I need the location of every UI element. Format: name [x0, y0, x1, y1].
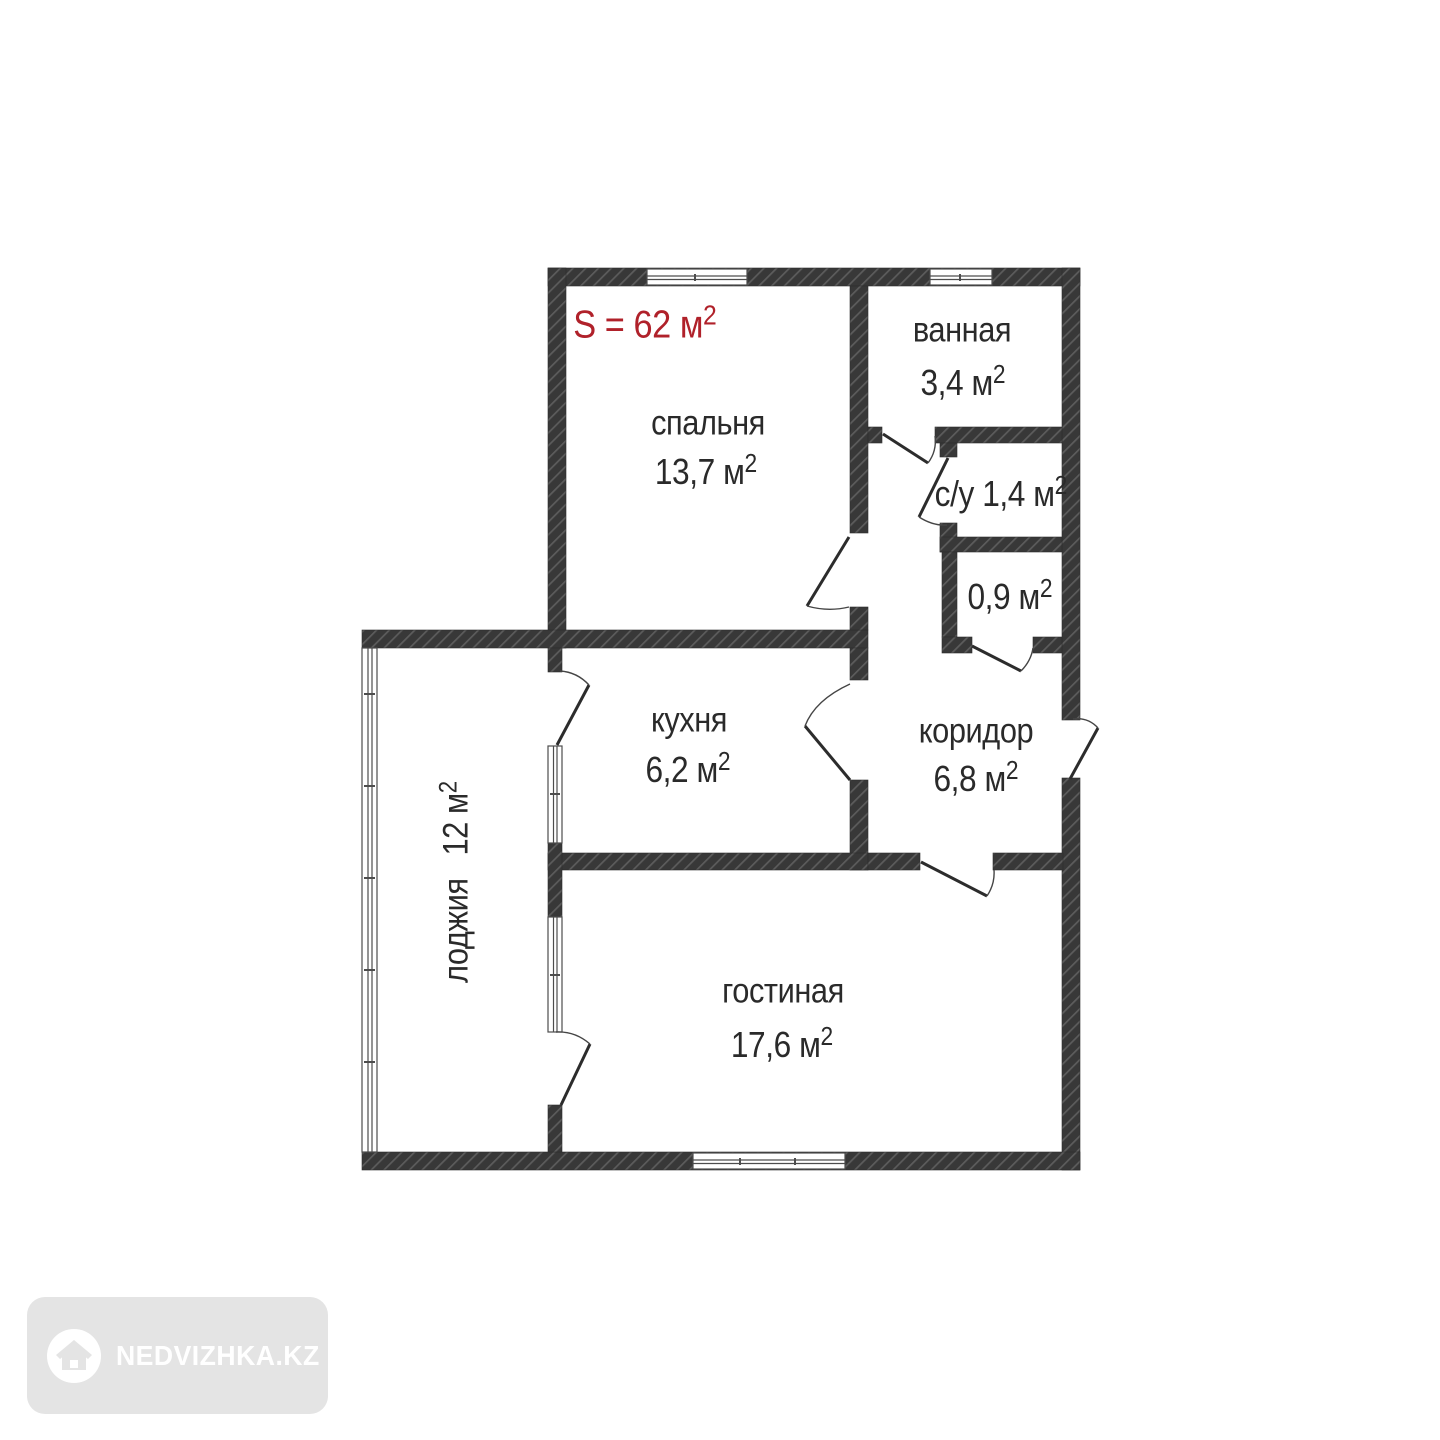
label-bedroom-name: спальня	[651, 406, 765, 441]
window-bathroom	[930, 269, 992, 285]
label-corridor-area: 6,8 м2	[933, 759, 1018, 797]
total-area-label: S = 62 м2	[573, 302, 717, 345]
door-storage	[972, 646, 1033, 671]
label-bathroom-name: ванная	[913, 313, 1011, 348]
door-kitchen-balcony	[557, 671, 589, 745]
window-kitchen-loggia	[548, 746, 562, 843]
label-storage-area: 0,9 м2	[967, 577, 1052, 615]
window-living	[693, 1153, 845, 1169]
watermark-badge: NEDVIZHKA.KZ	[27, 1297, 328, 1414]
label-living-name: гостиная	[722, 974, 844, 1009]
door-bedroom	[807, 537, 849, 609]
label-bathroom-area: 3,4 м2	[920, 363, 1005, 401]
label-bedroom-area: 13,7 м2	[655, 452, 757, 490]
label-loggia: лоджия12 м2	[436, 781, 473, 983]
label-living-area: 17,6 м2	[731, 1025, 833, 1063]
door-entry	[1070, 719, 1098, 779]
label-kitchen-area: 6,2 м2	[645, 750, 730, 788]
door-living-balcony	[556, 1032, 590, 1105]
label-wc: с/у 1,4 м2	[935, 474, 1068, 512]
door-living	[921, 862, 994, 896]
label-kitchen-name: кухня	[651, 703, 727, 738]
label-corridor-name: коридор	[919, 714, 1033, 749]
door-kitchen	[805, 684, 850, 780]
window-loggia-glazing	[362, 648, 377, 1152]
window-living-loggia	[548, 917, 562, 1032]
floorplan-page: S = 62 м2 спальня 13,7 м2 ванная 3,4 м2 …	[0, 0, 1440, 1440]
house-icon	[46, 1328, 102, 1384]
watermark-text: NEDVIZHKA.KZ	[116, 1340, 320, 1372]
window-bedroom	[647, 269, 747, 285]
door-bathroom	[883, 434, 935, 463]
